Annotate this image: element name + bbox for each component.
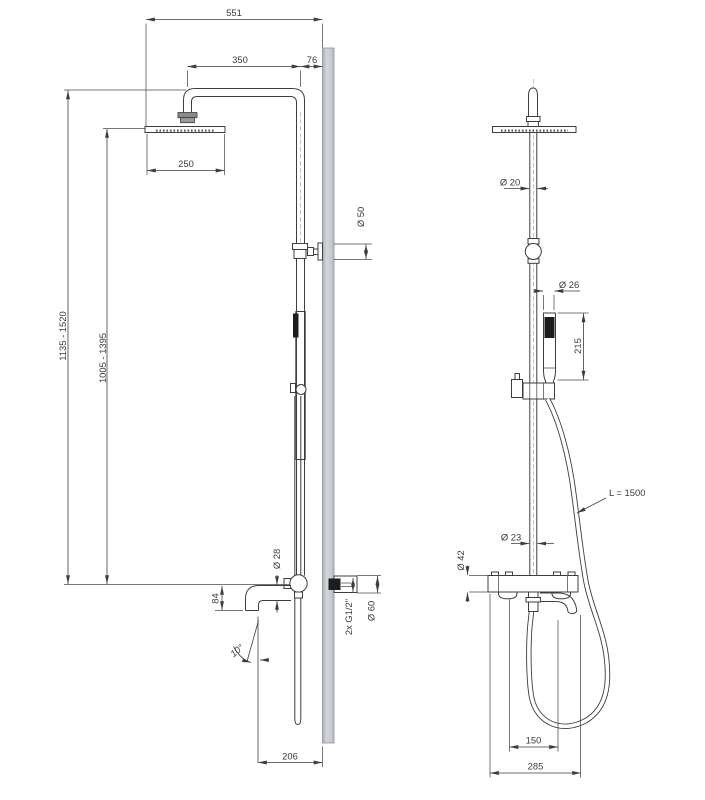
- dim-arm-reach: 350: [188, 54, 301, 67]
- dim-height-range-min-label: 1005 - 1395: [97, 333, 108, 383]
- valve-body-side: [290, 575, 307, 592]
- dimensions-front-view: Ø 20 Ø 26 215 L = 1500 Ø 23 Ø 42 1: [455, 177, 645, 778]
- ball-joint: [525, 244, 541, 260]
- dim-head-diameter-label: 250: [178, 158, 194, 169]
- hand-shower-grip: [545, 317, 555, 338]
- dim-pipe-diameter-label: Ø 20: [500, 177, 520, 188]
- dim-riser-diameter-label: Ø 23: [501, 532, 521, 543]
- holder-knob-side: [296, 385, 306, 395]
- spout-front-inner: [540, 602, 568, 613]
- spout-front-outlet: [568, 612, 577, 614]
- dim-spout-reach: 206: [258, 751, 323, 763]
- dim-spout-diameter: Ø 28: [271, 549, 282, 613]
- dim-wall-offset: 76: [301, 54, 323, 67]
- valve-lower-port: [295, 592, 303, 598]
- dim-hose-length: L = 1500: [577, 487, 645, 513]
- diverter-body: [529, 602, 539, 612]
- dim-height-range-max: 1135 - 1520: [57, 91, 68, 585]
- dim-riser-diameter: Ø 23: [501, 532, 554, 544]
- shower-arm-inner: [192, 97, 297, 576]
- dim-spout-diameter-label: Ø 28: [271, 549, 282, 569]
- dim-connections-label: 2x G1/2": [343, 599, 354, 635]
- dim-valve-centers: 150: [510, 735, 559, 748]
- valve-handle-left: [499, 592, 518, 599]
- dim-arm-reach-label: 350: [232, 54, 248, 65]
- dim-pipe-diameter: Ø 20: [500, 177, 548, 189]
- spout-outer: [246, 586, 292, 611]
- dim-valve-diameter: Ø 42: [455, 550, 468, 602]
- dim-handshower-length-label: 215: [572, 338, 583, 354]
- dim-height-range-max-label: 1135 - 1520: [57, 311, 68, 360]
- holder-knob-front: [512, 380, 523, 398]
- inwall-connection-block: [329, 579, 341, 591]
- hose-front-outer: [529, 399, 608, 726]
- wall-section: [323, 48, 335, 743]
- dim-valve-width: 285: [490, 761, 581, 774]
- dim-valve-centers-label: 150: [526, 735, 542, 746]
- arm-stub-front: [529, 88, 538, 117]
- dim-height-range-min: 1005 - 1395: [97, 129, 108, 584]
- dim-spout-angle-label: 10°: [228, 641, 246, 659]
- dim-bracket-diameter-label: Ø 50: [355, 207, 366, 227]
- technical-drawing-page: 551 350 76 250 1135 - 1520 1005 - 1395 Ø…: [0, 0, 705, 800]
- handshower-grip-side: [293, 314, 299, 338]
- diverter-flange: [526, 598, 541, 603]
- bracket-stem: [314, 249, 319, 255]
- dim-valve-width-label: 285: [528, 761, 544, 772]
- bracket-knob: [308, 248, 314, 256]
- dim-escutcheon-diameter-label: Ø 60: [366, 601, 377, 621]
- shower-system-drawing: 551 350 76 250 1135 - 1520 1005 - 1395 Ø…: [0, 0, 705, 800]
- dim-valve-diameter-label: Ø 42: [455, 550, 466, 570]
- dim-handshower-diameter: Ø 26: [535, 279, 580, 291]
- valve-body-front: [488, 576, 578, 593]
- dim-handshower-length: 215: [572, 314, 584, 380]
- head-nut-front-upper: [527, 117, 541, 122]
- dim-top-width-label: 551: [226, 7, 242, 18]
- side-view: [145, 48, 357, 743]
- dim-escutcheon-diameter: Ø 60: [366, 576, 378, 621]
- dim-handshower-diameter-label: Ø 26: [559, 279, 579, 290]
- bracket-cap: [293, 244, 308, 250]
- bracket-body: [294, 250, 306, 259]
- holder-hook-side: [291, 384, 296, 393]
- holder-body-front: [523, 383, 555, 399]
- dim-spout-reach-label: 206: [282, 751, 298, 762]
- dim-top-width: 551: [146, 7, 323, 20]
- head-nut-lower: [181, 118, 195, 123]
- dim-head-diameter: 250: [147, 158, 225, 171]
- dim-wall-offset-label: 76: [307, 54, 317, 65]
- dim-spout-drop: 84: [210, 586, 223, 610]
- dim-spout-drop-label: 84: [210, 593, 221, 603]
- dim-spout-angle: 10°: [228, 617, 267, 763]
- dim-bracket-diameter: Ø 50: [355, 207, 366, 259]
- diverter-neck: [529, 592, 539, 598]
- shower-arm-outer: [184, 89, 305, 576]
- dim-hose-length-label: L = 1500: [609, 487, 645, 498]
- head-nut-upper: [178, 113, 197, 118]
- holder-pin: [515, 374, 520, 380]
- spout-inner: [259, 601, 292, 611]
- bracket-flange: [318, 243, 323, 260]
